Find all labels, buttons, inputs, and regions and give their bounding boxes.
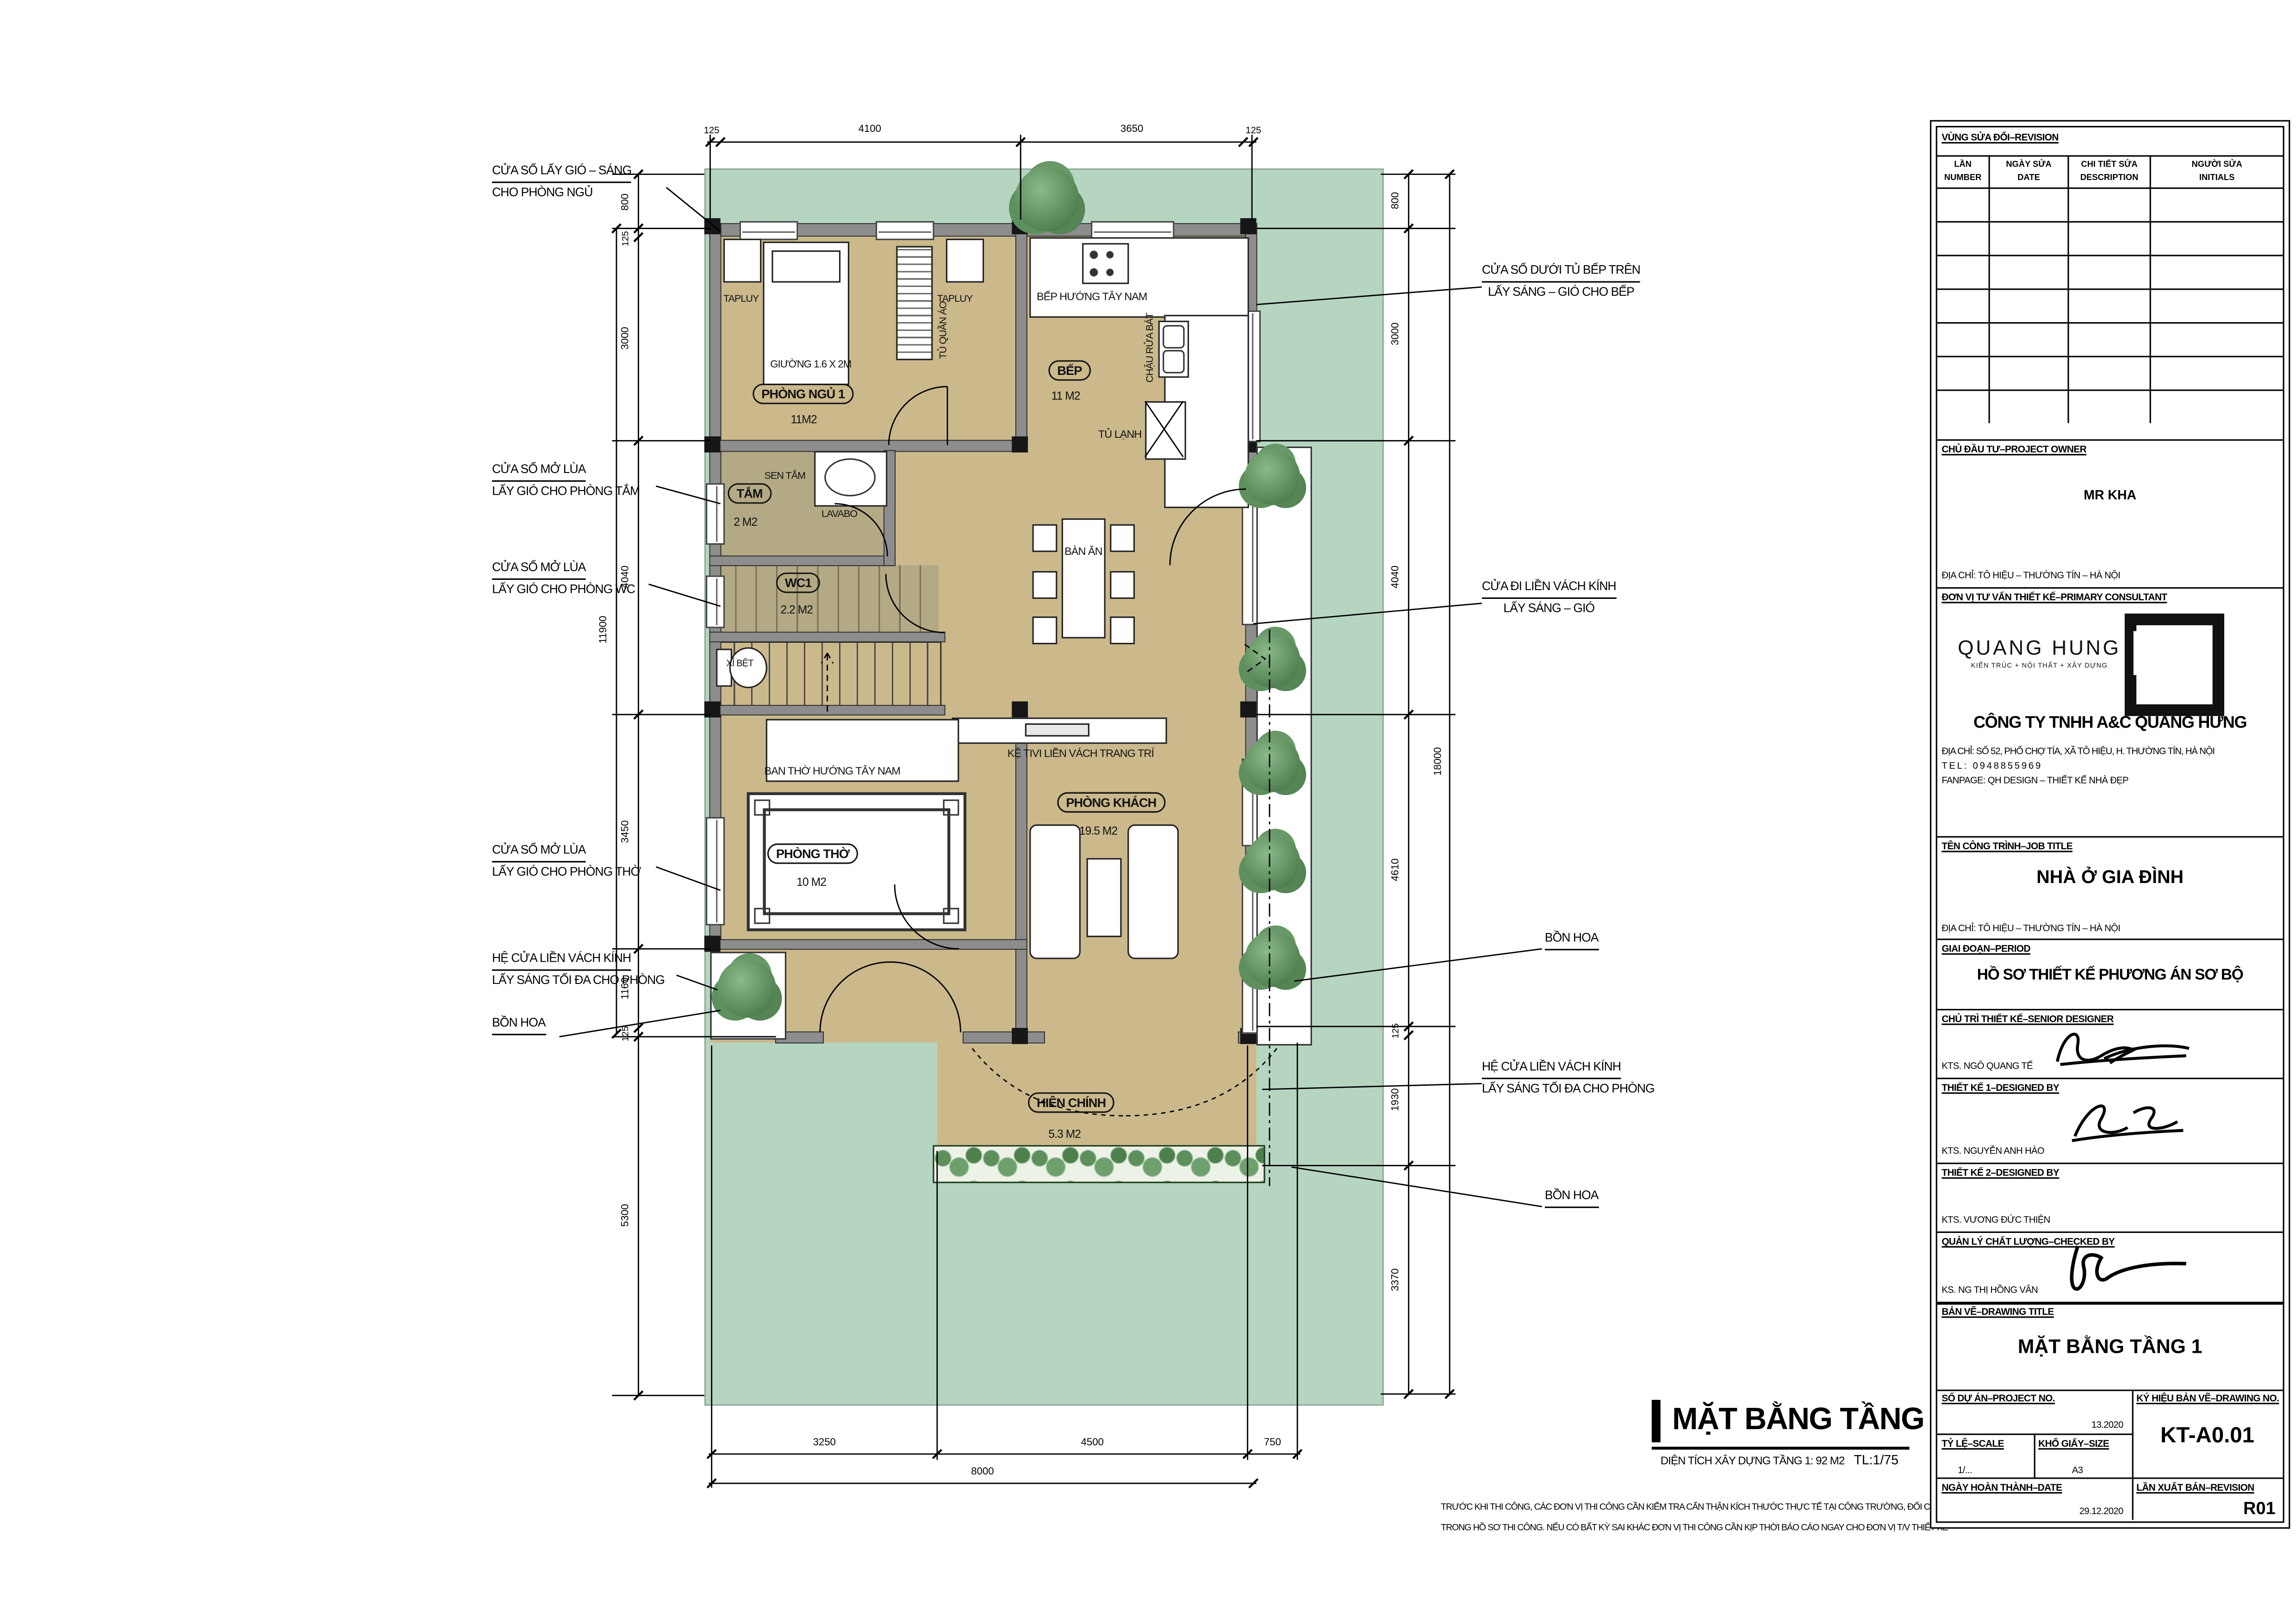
revision-empty-row [1937,323,2283,356]
meta-scale: 1/... [1958,1466,1972,1476]
room-living: PHÒNG KHÁCH [1057,792,1165,813]
signature-checked [2028,1237,2204,1296]
coffee-table [1087,858,1122,937]
annotation-text: HỆ CỬA LIỀN VÁCH KÍNH [1482,1057,1621,1080]
label-fridge: TỦ LẠNH [1098,428,1141,441]
tb-senior-name: KTS. NGÔ QUANG TẾ [1941,1062,2033,1072]
tb-design1-name: KTS. NGUYỄN ANH HÀO [1941,1146,2044,1157]
annotation-text: CỬA ĐI LIỀN VÁCH KÍNH [1482,577,1616,600]
room-porch: HIÊN CHÍNH [1028,1092,1114,1113]
disclaimer-line1: TRƯỚC KHI THI CÔNG, CÁC ĐƠN VỊ THI CÔNG … [1441,1502,1909,1512]
dim-top-3: 125 [1221,126,1286,136]
column [1012,1028,1028,1044]
annotation-text: LẤY GIÓ CHO PHÒNG THỜ [492,863,641,883]
room-worship: PHÒNG THỜ [767,843,858,864]
meta-drawing-no: KT-A0.01 [2132,1423,2283,1448]
meta-date-cell: NGÀY HOÀN THÀNH–DATE 29.12.2020 [1937,1477,2134,1520]
tb-period-label: GIAI ĐOẠN–PERIOD [1937,939,2283,960]
wc-floor [716,565,939,634]
annotation-text: LẤY SÁNG – GIÓ CHO BẾP [1482,283,1640,303]
column [1240,218,1257,234]
signature-senior [2040,1020,2201,1070]
tb-owner-label: CHỦ ĐẦU TƯ–PROJECT OWNER [1937,439,2283,461]
logo-frame-gap [2134,631,2148,675]
bed-pillow [772,250,840,283]
dim-top-1: 4100 [838,124,902,135]
tb-design2-name: KTS. VƯƠNG ĐỨC THIỆN [1941,1215,2050,1226]
annotation-text: CHO PHÒNG NGỦ [492,184,631,204]
dim-right-overall: 18000 [1433,729,1448,794]
chair [1033,524,1058,552]
logo-name: QUANG HUNG [1958,635,2121,659]
sofa-left [1029,824,1081,959]
wall-worship-living [1016,715,1027,1043]
annotation-text: CỬA SỔ MỞ LÙA [492,840,585,863]
wall-bath-bottom [710,556,895,565]
sink-bowl-2 [1163,350,1184,373]
annotation-text: BỒN HOA [1545,928,1599,951]
wall-living-bottom-a [1027,1033,1044,1043]
sofa-right [1127,824,1179,959]
meta-rev: R01 [2243,1498,2276,1518]
annotation-right-1: CỬA ĐI LIỀN VÁCH KÍNH LẤY SÁNG – GIÓ [1482,577,1616,619]
dining-table [1062,518,1106,638]
rev-col: INITIALS [2199,174,2234,183]
tb-owner: CHỦ ĐẦU TƯ–PROJECT OWNER MR KHA ĐỊA CHỈ:… [1937,439,2283,589]
label-dining: BÀN ĂN [1064,545,1102,558]
dim-right-0: 800 [1391,168,1406,233]
meta-date-label: NGÀY HOÀN THÀNH–DATE [1937,1479,2132,1498]
area-porch: 5.3 M2 [1048,1127,1081,1140]
area-worship: 10 M2 [796,876,826,889]
meta-drawingno-label: KÝ HIỆU BẢN VẼ–DRAWING NO. [2132,1390,2283,1409]
sink-bowl-1 [1163,325,1184,348]
label-tapluy-left: TAPLUY [723,294,759,305]
plan-scale-note: TL:1/75 [1854,1453,1898,1468]
meta-drawingno-cell: KÝ HIỆU BẢN VẼ–DRAWING NO. KT-A0.01 [2132,1390,2283,1478]
revision-empty-row [1937,390,2283,424]
dim-bottom-2: 750 [1240,1438,1305,1448]
rev-col: NGƯỜI SỬA [2191,161,2242,170]
plant-icon [1244,449,1300,505]
plan-title-bar [1652,1400,1661,1443]
tb-revision: VÙNG SỬA ĐỔI–REVISION LẦNNUMBER NGÀY SỬA… [1937,127,2283,441]
tb-revision-title: VÙNG SỬA ĐỔI–REVISION [1937,127,2283,155]
window-bedroom-2 [876,221,934,240]
column [1012,702,1028,718]
label-lavabo: LAVABO [821,510,857,520]
column [704,218,721,234]
tb-design2-label: THIẾT KẾ 2–DESIGNED BY [1937,1163,2283,1184]
quang-hung-logo: QUANG HUNG KIẾN TRÚC + NỘI THẤT + XÂY DỰ… [1937,612,2283,703]
annotation-text: BỒN HOA [492,1013,546,1036]
dim-left-2: 3000 [621,306,635,370]
dim-right-3: 4610 [1391,838,1406,902]
meta-size-label: KHỔ GIẤY–SIZE [2034,1435,2132,1454]
signature-design1 [2054,1092,2201,1145]
meta-project-label: SỐ DỰ ÁN–PROJECT NO. [1937,1390,2132,1409]
annotation-text: CỬA SỔ MỞ LÙA [492,558,585,580]
dim-right-6: 3370 [1391,1248,1406,1312]
plant-icon [1015,167,1079,231]
nightstand-left [723,239,761,283]
plant-icon [1244,931,1300,987]
chair [1110,571,1135,599]
label-kitchen-dir: BẾP HƯỚNG TÂY NAM [1037,290,1147,303]
porch-hedge [933,1145,1265,1183]
annotation-right-3: HỆ CỬA LIỀN VÁCH KÍNH LẤY SÁNG TỐI ĐA CH… [1482,1057,1655,1099]
tv [1025,723,1089,736]
label-altar: BAN THỜ HƯỚNG TÂY NAM [765,765,901,778]
tb-drawing: BẢN VẼ–DRAWING TITLE MẶT BẰNG TẦNG 1 [1937,1302,2283,1391]
dim-right-5: 1930 [1391,1067,1406,1132]
annotation-text: LẤY SÁNG – GIÓ [1482,599,1616,619]
meta-rev-label: LẦN XUẤT BẢN–REVISION [2132,1479,2283,1498]
meta-date: 29.12.2020 [2079,1507,2123,1517]
dim-right-4: 125 [1391,999,1406,1063]
area-kitchen: 11 M2 [1052,390,1080,403]
meta-project-no: 13.2020 [2091,1420,2123,1431]
dim-bottom-0: 3250 [792,1438,857,1448]
tb-design1: THIẾT KẾ 1–DESIGNED BY KTS. NGUYỄN ANH H… [1937,1078,2283,1164]
plan-title-underline [1652,1447,1910,1450]
wall-bed-bottom [710,441,1026,451]
carpet-corner [754,908,770,924]
annotation-text: LẤY SÁNG TỐI ĐA CHO PHÒNG [1482,1080,1655,1100]
meta-size-cell: KHỔ GIẤY–SIZE A3 [2034,1433,2134,1479]
meta-scale-cell: TỶ LỆ–SCALE 1/... [1937,1433,2035,1479]
annotation-left-4: HỆ CỬA LIỀN VÁCH KÍNH LẤY SÁNG TỐI ĐA CH… [492,949,665,991]
area-bedroom: 11M2 [791,413,817,426]
rev-col: DATE [2017,174,2040,183]
tb-consultant-label: ĐƠN VỊ TƯ VẤN THIẾT KẾ–PRIMARY CONSULTAN… [1937,587,2283,609]
column [704,702,721,718]
revision-empty-row [1937,356,2283,390]
dim-left-3: 4040 [621,545,635,609]
label-sink: CHẬU RỬA BÁT [1145,313,1156,382]
dim-right-1: 3000 [1391,302,1406,366]
dim-bottom-1: 4500 [1060,1438,1125,1448]
meta-project-cell: SỐ DỰ ÁN–PROJECT NO. 13.2020 [1937,1390,2134,1434]
meta-rev-cell: LẦN XUẤT BẢN–REVISION R01 [2132,1477,2283,1520]
label-bed: GIƯỜNG 1.6 X 2M [770,360,851,370]
rev-col: CHI TIẾT SỬA [2081,161,2137,170]
revision-empty-row [1937,188,2283,222]
annotation-left-2: CỬA SỔ MỞ LÙA LẤY GIÓ CHO PHÒNG WC [492,558,635,600]
rev-col: NUMBER [1944,174,1982,183]
dim-left-6: 125 [621,1002,635,1066]
column [704,436,721,453]
stove [1082,243,1129,284]
annotation-left-0: CỬA SỔ LẤY GIÓ – SÁNG CHO PHÒNG NGỦ [492,161,631,203]
meta-scale-label: TỶ LỆ–SCALE [1937,1435,2034,1454]
rev-col: NGÀY SỬA [2006,161,2051,170]
tb-job-label: TÊN CÔNG TRÌNH–JOB TITLE [1937,836,2283,858]
carpet-corner [943,908,959,924]
dim-left-4: 3450 [621,799,635,864]
disclaimer-line2: TRONG HỒ SƠ THI CÔNG. NẾU CÓ BẤT KỲ SAI … [1441,1523,1909,1533]
revision-empty-row [1937,222,2283,255]
revision-empty-row [1937,255,2283,289]
tb-company-fanpage: FANPAGE: QH DESIGN – THIẾT KẾ NHÀ ĐẸP [1941,776,2283,786]
plan-area-note: DIỆN TÍCH XÂY DỰNG TẦNG 1: 92 M2 [1661,1454,1844,1467]
room-bath: TẮM [728,483,771,504]
annotation-right-4: BỒN HOA [1545,1186,1599,1209]
annotation-text: LẤY SÁNG TỐI ĐA CHO PHÒNG [492,971,665,991]
logo-tagline: KIẾN TRÚC + NỘI THẤT + XÂY DỰNG [1958,662,2121,669]
dim-left-overall: 11900 [599,597,614,662]
rev-col: LẦN [1954,161,1972,170]
annotation-left-1: CỬA SỔ MỞ LÙA LẤY GIÓ CHO PHÒNG TẮM [492,460,640,502]
tb-job: TÊN CÔNG TRÌNH–JOB TITLE NHÀ Ở GIA ĐÌNH … [1937,836,2283,940]
room-kitchen: BẾP [1048,360,1090,380]
window-bath [706,483,725,545]
plan-title: MẶT BẰNG TẦNG 1 [1672,1403,1948,1438]
meta-size: A3 [2072,1466,2083,1476]
annotation-text: CỬA SỔ DƯỚI TỦ BẾP TRÊN [1482,261,1640,283]
tb-company-address: ĐỊA CHỈ: SỐ 52, PHỐ CHỢ TÍA, XÃ TÔ HIỆU,… [1941,747,2283,757]
tb-checked-name: KS. NG THỊ HỒNG VÂN [1941,1286,2038,1296]
window-wc [706,575,725,628]
room-bedroom: PHÒNG NGỦ 1 [753,384,853,404]
chair [1033,571,1058,599]
window-worship [706,817,725,925]
chair [1033,616,1058,644]
annotation-left-3: CỬA SỔ MỞ LÙA LẤY GIÓ CHO PHÒNG THỜ [492,840,641,883]
dim-bottom-overall: 8000 [950,1467,1014,1477]
annotation-right-2: BỒN HOA [1545,928,1599,951]
annotation-left-5: BỒN HOA [492,1013,546,1036]
tb-job-address: ĐỊA CHỈ: TÔ HIỆU – THƯỜNG TÍN – HÀ NỘI [1941,924,2120,934]
tb-period-value: HỒ SƠ THIẾT KẾ PHƯƠNG ÁN SƠ BỘ [1937,966,2283,984]
tb-company-tel: TEL: 0948855969 [1941,761,2283,772]
tb-company: CÔNG TY TNHH A&C QUANG HƯNG [1937,715,2283,732]
annotation-text: LẤY GIÓ CHO PHÒNG TẮM [492,482,640,502]
tb-checked: QUẢN LÝ CHẤT LƯỢNG–CHECKED BY KS. NG THỊ… [1937,1232,2283,1305]
tb-drawing-title: MẶT BẰNG TẦNG 1 [1937,1335,2283,1357]
rev-col: DESCRIPTION [2080,174,2138,183]
chair [1110,524,1135,552]
plant-icon [717,959,776,1018]
room-wc: WC1 [776,572,821,593]
label-sen-tam: SEN TẮM [765,472,806,482]
revision-empty-row [1937,289,2283,323]
column [1012,436,1028,453]
chair [1110,616,1135,644]
tb-consultant: ĐƠN VỊ TƯ VẤN THIẾT KẾ–PRIMARY CONSULTAN… [1937,587,2283,838]
area-bath: 2 M2 [734,516,757,529]
window-bedroom-1 [740,221,798,240]
tb-owner-address: ĐỊA CHỈ: TÔ HIỆU – THƯỜNG TÍN – HÀ NỘI [1941,571,2120,581]
area-wc: 2.2 M2 [780,604,813,616]
dim-left-1: 125 [621,206,635,271]
tb-drawing-label: BẢN VẼ–DRAWING TITLE [1937,1302,2283,1324]
wall-stairs-bottom [710,706,944,715]
carpet-corner [943,799,959,815]
annotation-text: HỆ CỬA LIỀN VÁCH KÍNH [492,949,631,971]
annotation-text: CỬA SỔ LẤY GIÓ – SÁNG [492,161,631,184]
column [704,936,721,952]
tb-period: GIAI ĐOẠN–PERIOD HỒ SƠ THIẾT KẾ PHƯƠNG Á… [1937,939,2283,1010]
annotation-text: CỬA SỔ MỞ LÙA [492,460,585,482]
label-tv: KỆ TIVI LIỀN VÁCH TRANG TRÍ [1008,747,1154,760]
annotation-text: BỒN HOA [1545,1186,1599,1209]
tb-senior: CHỦ TRÌ THIẾT KẾ–SENIOR DESIGNER KTS. NG… [1937,1009,2283,1079]
dim-top-2: 3650 [1100,124,1164,135]
tb-owner-name: MR KHA [1937,488,2283,503]
label-xi-bet: XÍ BỆT [726,659,753,669]
wall-wc-bottom [710,633,944,641]
area-living: 19.5 M2 [1079,824,1118,837]
nightstand-right [946,239,984,283]
wall-bed-kitchen [1016,224,1027,451]
tb-meta: SỐ DỰ ÁN–PROJECT NO. 13.2020 KÝ HIỆU BẢN… [1937,1390,2283,1518]
plant-icon [1244,736,1300,792]
logo-text: QUANG HUNG KIẾN TRÚC + NỘI THẤT + XÂY DỰ… [1958,635,2121,669]
column [1240,702,1257,718]
revision-table-header: LẦNNUMBER NGÀY SỬADATE CHI TIẾT SỬADESCR… [1937,155,2283,188]
tb-job-title: NHÀ Ở GIA ĐÌNH [1937,867,2283,887]
dim-top-0: 125 [679,126,744,136]
fridge [1145,401,1186,460]
wall-worship-bottom [710,940,1026,949]
dim-left-7: 5300 [621,1183,635,1247]
plant-icon [1244,834,1300,890]
dim-right-2: 4040 [1391,545,1406,609]
plant-icon [1244,633,1300,688]
wardrobe [896,246,933,361]
label-wardrobe: TỦ QUẦN ÁO [939,301,949,359]
annotation-right-0: CỬA SỔ DƯỚI TỦ BẾP TRÊN LẤY SÁNG – GIÓ C… [1482,261,1640,303]
kitchen-counter-top [1029,237,1249,318]
drawing-sheet: TAPLUY TAPLUY GIƯỜNG 1.6 X 2M TỦ QUẦN ÁO… [0,0,2296,1624]
lavabo-basin [824,458,876,496]
title-block: VÙNG SỬA ĐỔI–REVISION LẦNNUMBER NGÀY SỬA… [1930,120,2290,1529]
carpet-corner [754,799,770,815]
tb-design2: THIẾT KẾ 2–DESIGNED BY KTS. VƯƠNG ĐỨC TH… [1937,1163,2283,1233]
